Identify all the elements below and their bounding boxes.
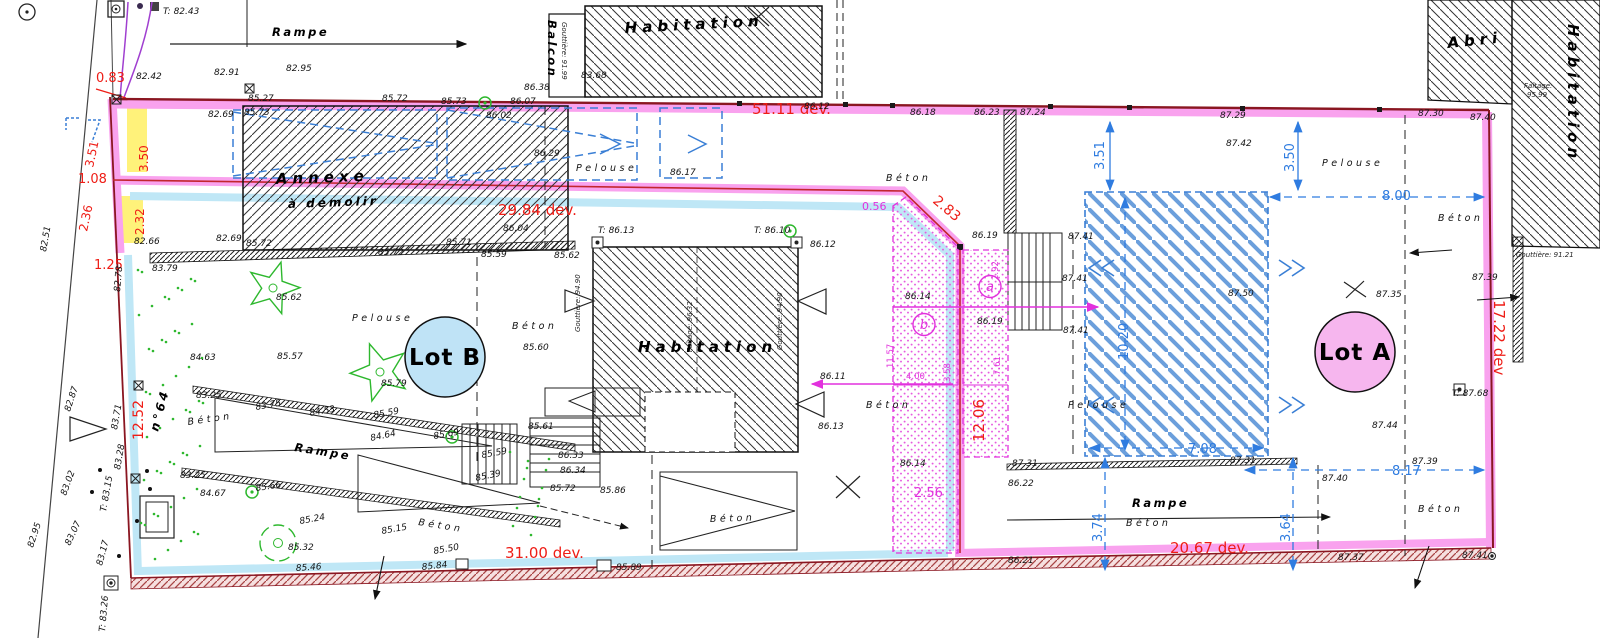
grass-dot [545,469,548,472]
elevation-label: 86.17 [670,168,696,178]
grass-dot [161,339,164,342]
elevation-label: 87.41 [1063,326,1089,336]
grass-dot [170,506,173,509]
elevation-label: 87.39 [1472,273,1498,283]
elevation-label: 87.31 [1012,459,1038,469]
elevation-label: 84.63 [190,353,216,363]
grass-dot [186,454,189,457]
lot-a-label: Lot A [1319,340,1391,366]
grass-dot [145,391,148,394]
surface-label: Béton [187,411,234,428]
feature-name-label: Balcon [545,20,559,78]
red-dimension-label: 1.08 [78,172,107,187]
elevation-label: 85.73 [244,108,270,118]
grass-dot [541,487,544,490]
building-abri [1428,0,1512,104]
elevation-label: 83.25 [196,391,222,401]
elevation-label: 85.62 [554,251,580,261]
elevation-label: 82.91 [214,68,240,78]
elevation-label: 85.46 [296,562,323,574]
elevation-label: 85.72 [378,248,404,258]
blue-dimension-label: 3.51 [1093,141,1108,170]
elevation-label: 87.40 [1322,474,1348,484]
grass-dot [189,411,192,414]
elevation-label: 87.39 [1412,457,1438,467]
red-dimension-label: 17.22 dev [1490,300,1508,375]
elevation-label: 86.12 [810,240,836,250]
elevation-label: 85.89 [616,563,642,573]
elevation-label: 85.71 [446,238,472,248]
grass-dot [534,516,537,519]
tree-center-icon [376,368,384,376]
grass-dot [148,348,151,351]
building-habitation-east [1512,0,1600,248]
surface-label: Béton [886,173,931,184]
grass-dot [153,513,156,516]
surface-label: Béton [710,512,756,525]
elevation-label: 83.02 [59,469,77,497]
blue-dimension-label: 7.08 [1188,442,1217,457]
elevation-label: 85.61 [528,422,554,432]
grass-dot [202,402,205,405]
elevation-label: 83.07 [64,519,84,547]
magenta-dimension-label: 3.58 [943,363,953,382]
site-plan-drawing: Lot B Lot A T: 82.43Rampe0.8382.4282.918… [0,0,1600,638]
elevation-label: 82.69 [216,234,242,244]
red-dimension-label: 3.50 [137,145,151,172]
elevation-label: 85.15 [381,523,408,537]
surface-label: Pelouse [352,313,413,324]
elevation-label: 86.23 [974,108,1000,118]
elevation-label: 87.31 [1230,456,1256,466]
elevation-label: 86.04 [503,224,529,234]
grass-dot [548,458,551,461]
elevation-label: 86.33 [558,451,584,461]
red-dimension-label: 3.51 [82,140,101,169]
grass-dot [199,445,202,448]
elevation-label: 87.50 [1228,289,1254,299]
feature-name-label: Rampe [1132,496,1189,510]
grass-dot [196,488,199,491]
elevation-label: 87.29 [1220,111,1246,121]
surface-label: Béton [1418,504,1463,515]
elevation-label: 86.38 [524,83,550,93]
grass-dot [185,409,188,412]
grass-dot [183,497,186,500]
site-plan-canvas: Lot B Lot A T: 82.43Rampe0.8382.4282.918… [0,0,1600,638]
blue-dimension-label: 3.64 [1279,513,1294,542]
feature-name-label: Habitation [638,338,777,356]
elevation-label: 86.14 [900,459,926,469]
red-dimension-label: 12.06 [970,399,988,442]
elevation-label: 85.79 [381,379,407,389]
elevation-label: 82.51 [39,225,53,252]
elevation-label: 86.29 [534,149,560,159]
grass-dot [172,418,175,421]
grass-dot [174,330,177,333]
feature-name-label: Annexe [275,167,370,188]
feature-name-label: Habitation [1564,24,1582,163]
annotation-label: Gouttière: 94.90 [776,292,784,350]
annotation-label: Gouttière: 91.21 [1516,251,1574,259]
grass-dot [191,323,194,326]
magenta-dimension-label: 0.56 [862,200,887,213]
grass-dot [516,507,519,510]
elevation-label: 82.78 [113,265,125,292]
grass-dot [140,522,143,525]
elevation-label: 82.95 [26,521,44,549]
elevation-label: 87.30 [1418,109,1444,119]
lot-b-label: Lot B [409,345,481,371]
grass-dot [538,498,541,501]
grass-dot [523,478,526,481]
grass-dot [143,479,146,482]
elevation-label: 85.59 [481,250,507,260]
tree-icon [251,262,300,313]
grass-dot [164,296,167,299]
elevation-label: 85.27 [248,94,274,104]
elevation-label: 85.62 [276,293,302,303]
grass-dot [526,467,529,470]
grass-dot [165,341,168,344]
grass-dot [177,287,180,290]
elevation-label: 85.72 [382,94,408,104]
shrub-dot [250,490,253,493]
elevation-label: 85.50 [433,543,460,557]
grass-dot [527,460,530,463]
grass-dot [188,366,191,369]
grass-dot [168,298,171,301]
grass-dot [182,452,185,455]
elevation-label: 85.73 [441,97,467,107]
boundary-crossed-squares [104,84,254,590]
elevation-label: 83.25 [180,471,206,481]
grass-dot [151,305,154,308]
red-dimension-label: 20.67 dev. [1170,539,1249,557]
elevation-label: 82.69 [208,110,234,120]
magenta-dimension-label: 7.61 [993,356,1003,375]
grass-dot [156,470,159,473]
grass-dot [537,505,540,508]
grass-dot [144,524,147,527]
grass-dot [519,496,522,499]
blue-dimension-label: 8.00 [1382,189,1411,204]
elevation-label: 82.66 [134,237,160,247]
surface-label: Béton [1438,213,1483,224]
elevation-label: 85.59 [481,447,508,461]
elevation-label: 87.44 [1372,421,1398,431]
surface-label: Pelouse [1322,158,1383,169]
elevation-label: 85.60 [523,343,549,353]
elevation-label: 85.72 [550,484,576,494]
elevation-label: T: 87.68 [1452,389,1489,399]
grass-dot [180,540,183,543]
elevation-label: 86.19 [972,231,998,241]
blue-dimension-label: 3.74 [1091,513,1106,542]
grass-dot [194,280,197,283]
elevation-label: T: 86.13 [598,226,635,236]
magenta-dimension-label: 4.00 [906,372,925,382]
grass-dot [167,549,170,552]
elevation-label: T: 86.10 [754,226,791,236]
survey-dots [90,468,152,558]
tree-center-icon [269,284,277,292]
tree-icon [350,344,405,401]
elevation-label: 87.24 [1020,108,1046,118]
grass-dot [157,515,160,518]
grass-dot [160,472,163,475]
red-dimension-label: 0.83 [96,71,125,86]
elevation-label: 86.07 [510,97,536,107]
elevation-label: 86.02 [486,111,512,121]
elevation-label: 86.34 [560,466,586,476]
elevation-label: 86.13 [818,422,844,432]
annotation-label: Faîtage: [1524,82,1552,90]
elevation-label: 85.86 [600,486,626,496]
elevation-label: 85.39 [475,469,503,484]
surface-label: Pelouse [1068,400,1129,411]
elevation-label: 87.41 [1462,551,1488,561]
elevation-label: 83.79 [152,264,178,274]
feature-name-label: Rampe [272,25,329,39]
magenta-zone-letter: a [986,280,994,295]
elevation-label: T: 83.26 [98,595,111,632]
elevation-label: 87.41 [1068,232,1094,242]
grass-dot [530,534,533,537]
blue-dimension-label: 3.50 [1283,143,1298,172]
elevation-label: 84.64 [370,429,398,444]
grass-dot [509,451,512,454]
grass-dot [512,525,515,528]
elevation-label: 82.42 [136,72,162,82]
elevation-label: 86.12 [804,102,830,112]
elevation-label: 86.18 [910,108,936,118]
elevation-label: 85.24 [299,513,326,527]
elevation-label: 86.14 [905,292,931,302]
elevation-label: 83.17 [95,539,111,567]
elevation-label: T: 83.15 [99,475,115,513]
tree-center-icon [274,539,283,548]
magenta-dimension-label: 2.56 [914,486,943,501]
red-dimension-label: 31.00 dev. [505,544,584,562]
grass-dot [173,463,176,466]
elevation-label: T: 82.43 [163,7,200,17]
magenta-zones [812,197,1098,553]
elevation-label: 86.22 [1008,479,1034,489]
red-dimension-label: 2.36 [76,204,95,233]
grass-dot [162,384,165,387]
surface-label: Béton [418,517,465,535]
elevation-label: 86.19 [977,317,1003,327]
elevation-label: 84.67 [200,489,226,499]
annotation-label: 95.99 [1527,91,1548,99]
elevation-label: 87.41 [1062,274,1088,284]
elevation-label: 86.21 [1008,556,1034,566]
red-dimension-label: 29.84 dev. [498,201,577,219]
grass-dot [152,350,155,353]
magenta-zone-letter: b [920,318,928,333]
red-dimension-label: 12.52 [131,400,147,440]
red-dimension-label: 2.32 [133,208,147,235]
elevation-label: 83.68 [581,71,607,81]
surface-label: Béton [866,400,911,411]
annotation-label: Gouttière: 94.90 [574,274,582,332]
elevation-label: 85.32 [288,543,314,553]
surface-label: Pelouse [576,163,637,174]
grass-dot [181,289,184,292]
elevation-label: 87.40 [1470,113,1496,123]
grass-dot [137,269,140,272]
elevation-label: 83.71 [110,403,124,430]
shrub-dot [483,101,486,104]
elevation-label: 87.37 [1338,553,1364,563]
grass-dot [175,375,178,378]
elevation-label: 82.87 [63,385,81,413]
boundary-markers [737,101,1382,250]
grass-dot [169,461,172,464]
grass-dot [178,332,181,335]
grass-dot [190,278,193,281]
surface-label: Béton [1126,518,1171,529]
grass-dot [141,271,144,274]
blue-dimension-label: 10.20 [1117,323,1132,360]
elevation-label: 85.72 [246,239,272,249]
surface-label: Béton [512,321,557,332]
annotation-label: Gouttière: 91.99 [560,22,568,80]
grass-dot [138,314,141,317]
grass-dot [193,531,196,534]
elevation-label: 87.42 [1226,139,1252,149]
magenta-dimension-label: 11.57 [886,344,896,368]
elevation-label: 87.35 [1376,290,1402,300]
grass-dot [197,533,200,536]
elevation-label: 85.57 [277,352,303,362]
elevation-label: 86.11 [820,372,846,382]
grass-dot [154,558,157,561]
grass-dot [149,393,152,396]
elevation-label: 82.95 [286,64,312,74]
feature-name-label: Rampe [294,440,353,463]
